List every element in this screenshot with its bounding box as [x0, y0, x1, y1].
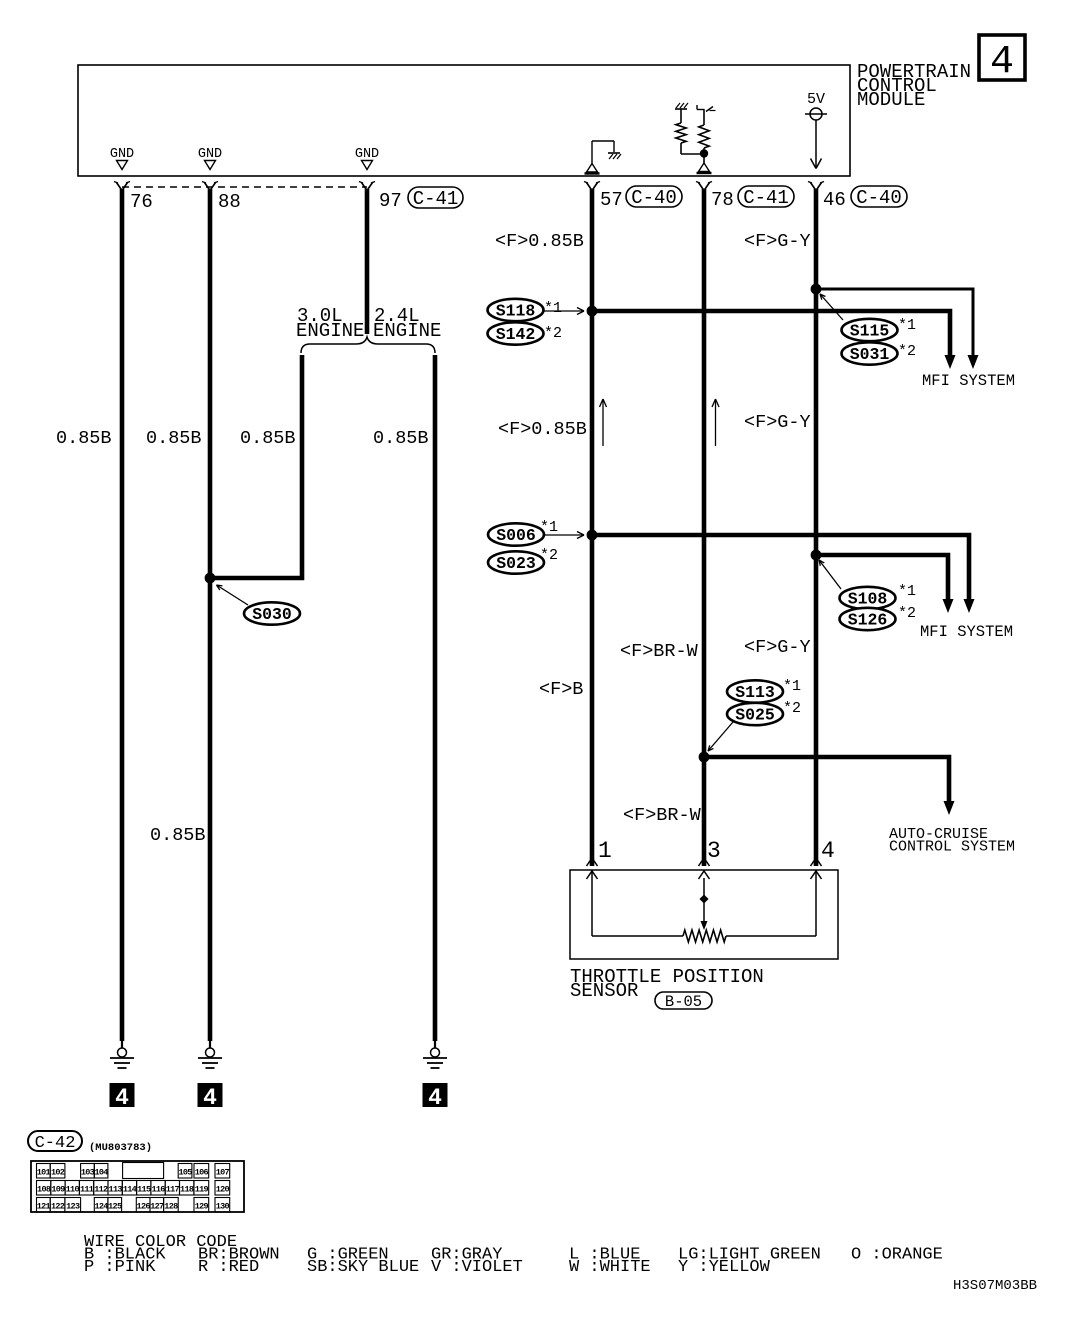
svg-text:C-41: C-41 [743, 187, 789, 209]
svg-text:129: 129 [195, 1201, 209, 1211]
svg-text:*1: *1 [544, 300, 562, 317]
svg-text:130: 130 [216, 1201, 230, 1211]
svg-text:H3S07M03BB: H3S07M03BB [953, 1278, 1037, 1294]
svg-text:S030: S030 [252, 605, 292, 624]
svg-text:116: 116 [151, 1184, 165, 1194]
svg-text:P :PINK: P :PINK [84, 1258, 156, 1277]
svg-text:<F>BR-W: <F>BR-W [623, 805, 702, 826]
svg-text:88: 88 [218, 191, 241, 213]
svg-text:118: 118 [180, 1184, 194, 1194]
svg-text:120: 120 [216, 1184, 230, 1194]
svg-text:119: 119 [195, 1184, 209, 1194]
svg-text:113: 113 [109, 1184, 123, 1194]
svg-text:5V: 5V [807, 91, 825, 108]
svg-text:*1: *1 [898, 317, 916, 334]
svg-text:ENGINE: ENGINE [373, 320, 441, 342]
svg-text:76: 76 [130, 191, 153, 213]
svg-text:C-42: C-42 [35, 1134, 76, 1153]
svg-text:117: 117 [166, 1184, 180, 1194]
svg-text:S115: S115 [850, 322, 890, 341]
svg-text:4: 4 [203, 1085, 217, 1111]
svg-text:0.85B: 0.85B [240, 428, 296, 449]
svg-text:MFI SYSTEM: MFI SYSTEM [920, 623, 1013, 641]
svg-text:SENSOR: SENSOR [570, 980, 638, 1002]
svg-text:<F>G-Y: <F>G-Y [744, 231, 811, 252]
svg-text:ENGINE: ENGINE [296, 320, 364, 342]
svg-text:S142: S142 [496, 325, 536, 344]
svg-text:115: 115 [137, 1184, 151, 1194]
svg-text:(MU803783): (MU803783) [89, 1142, 152, 1154]
svg-text:W :WHITE: W :WHITE [569, 1258, 651, 1277]
svg-text:V :VIOLET: V :VIOLET [431, 1258, 523, 1277]
svg-text:C-40: C-40 [856, 187, 902, 209]
svg-text:4: 4 [821, 838, 835, 864]
svg-text:4: 4 [428, 1085, 442, 1111]
svg-text:O :ORANGE: O :ORANGE [851, 1246, 943, 1265]
svg-text:111: 111 [80, 1184, 94, 1194]
svg-text:S108: S108 [848, 590, 888, 609]
svg-text:MFI SYSTEM: MFI SYSTEM [922, 372, 1015, 390]
svg-text:110: 110 [66, 1184, 80, 1194]
svg-text:GND: GND [355, 147, 379, 162]
svg-text:0.85B: 0.85B [150, 825, 206, 846]
svg-text:*2: *2 [898, 605, 916, 622]
svg-text:CONTROL SYSTEM: CONTROL SYSTEM [889, 839, 1015, 856]
svg-text:107: 107 [216, 1167, 230, 1177]
svg-text:97: 97 [379, 190, 402, 212]
svg-text:46: 46 [823, 189, 846, 211]
svg-text:C-40: C-40 [631, 187, 677, 209]
svg-text:S006: S006 [496, 526, 536, 545]
svg-text:125: 125 [108, 1201, 122, 1211]
svg-text:*2: *2 [898, 343, 916, 360]
svg-text:57: 57 [600, 189, 623, 211]
svg-text:<F>G-Y: <F>G-Y [744, 637, 811, 658]
svg-text:106: 106 [195, 1167, 209, 1177]
svg-text:C-41: C-41 [413, 188, 459, 210]
svg-text:Y :YELLOW: Y :YELLOW [678, 1258, 771, 1277]
svg-text:4: 4 [115, 1085, 129, 1111]
svg-text:*1: *1 [898, 583, 916, 600]
svg-text:123: 123 [66, 1201, 80, 1211]
svg-text:105: 105 [178, 1167, 192, 1177]
svg-text:*1: *1 [783, 678, 801, 695]
svg-text:*1: *1 [540, 519, 558, 536]
svg-text:S126: S126 [848, 611, 888, 630]
svg-text:121: 121 [37, 1201, 51, 1211]
svg-text:101: 101 [37, 1167, 51, 1177]
svg-text:<F>0.85B: <F>0.85B [498, 419, 587, 440]
svg-text:S118: S118 [496, 302, 536, 321]
svg-text:B-05: B-05 [665, 993, 702, 1011]
svg-text:MODULE: MODULE [857, 89, 925, 111]
svg-text:GND: GND [110, 147, 134, 162]
svg-text:SB:SKY BLUE: SB:SKY BLUE [307, 1258, 419, 1277]
svg-text:S025: S025 [735, 706, 775, 725]
svg-text:*2: *2 [544, 325, 562, 342]
svg-text:127: 127 [150, 1201, 164, 1211]
svg-text:109: 109 [51, 1184, 65, 1194]
svg-text:3: 3 [707, 838, 721, 864]
svg-text:<F>BR-W: <F>BR-W [620, 641, 699, 662]
svg-text:S113: S113 [735, 683, 775, 702]
svg-text:108: 108 [37, 1184, 51, 1194]
svg-text:<F>B: <F>B [539, 679, 583, 700]
svg-text:S031: S031 [850, 345, 890, 364]
svg-text:*2: *2 [783, 700, 801, 717]
svg-text:4: 4 [990, 40, 1014, 85]
svg-text:<F>0.85B: <F>0.85B [495, 231, 584, 252]
svg-text:114: 114 [123, 1184, 137, 1194]
svg-text:102: 102 [51, 1167, 65, 1177]
svg-text:126: 126 [137, 1201, 151, 1211]
svg-text:<F>G-Y: <F>G-Y [744, 412, 811, 433]
svg-text:103: 103 [81, 1167, 95, 1177]
svg-text:0.85B: 0.85B [146, 428, 202, 449]
svg-text:124: 124 [94, 1201, 108, 1211]
svg-text:*2: *2 [540, 547, 558, 564]
svg-text:0.85B: 0.85B [373, 428, 429, 449]
svg-text:104: 104 [94, 1167, 108, 1177]
svg-text:0.85B: 0.85B [56, 428, 112, 449]
svg-text:128: 128 [164, 1201, 178, 1211]
svg-text:GND: GND [198, 147, 222, 162]
svg-text:122: 122 [51, 1201, 65, 1211]
svg-text:S023: S023 [496, 554, 536, 573]
svg-text:112: 112 [94, 1184, 108, 1194]
svg-text:1: 1 [598, 838, 612, 864]
svg-text:78: 78 [711, 189, 734, 211]
svg-text:R :RED: R :RED [198, 1258, 259, 1277]
